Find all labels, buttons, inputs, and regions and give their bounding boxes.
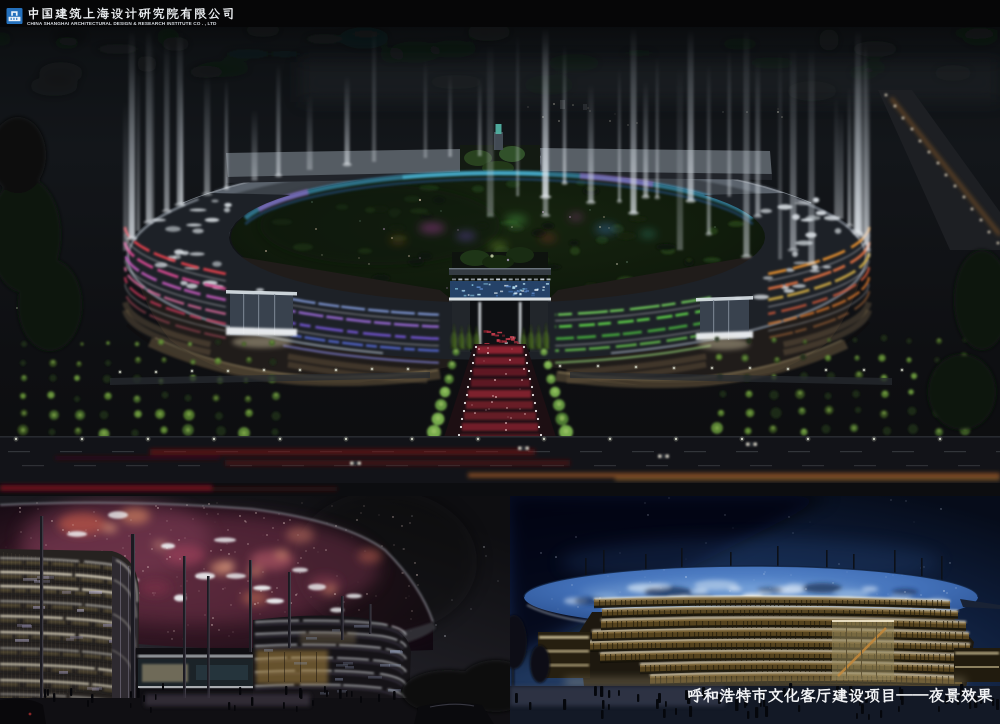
svg-text:CHINA SHANGHAI ARCHITECTURAL: CHINA SHANGHAI ARCHITECTURAL DESIGN & RE… <box>27 21 217 26</box>
